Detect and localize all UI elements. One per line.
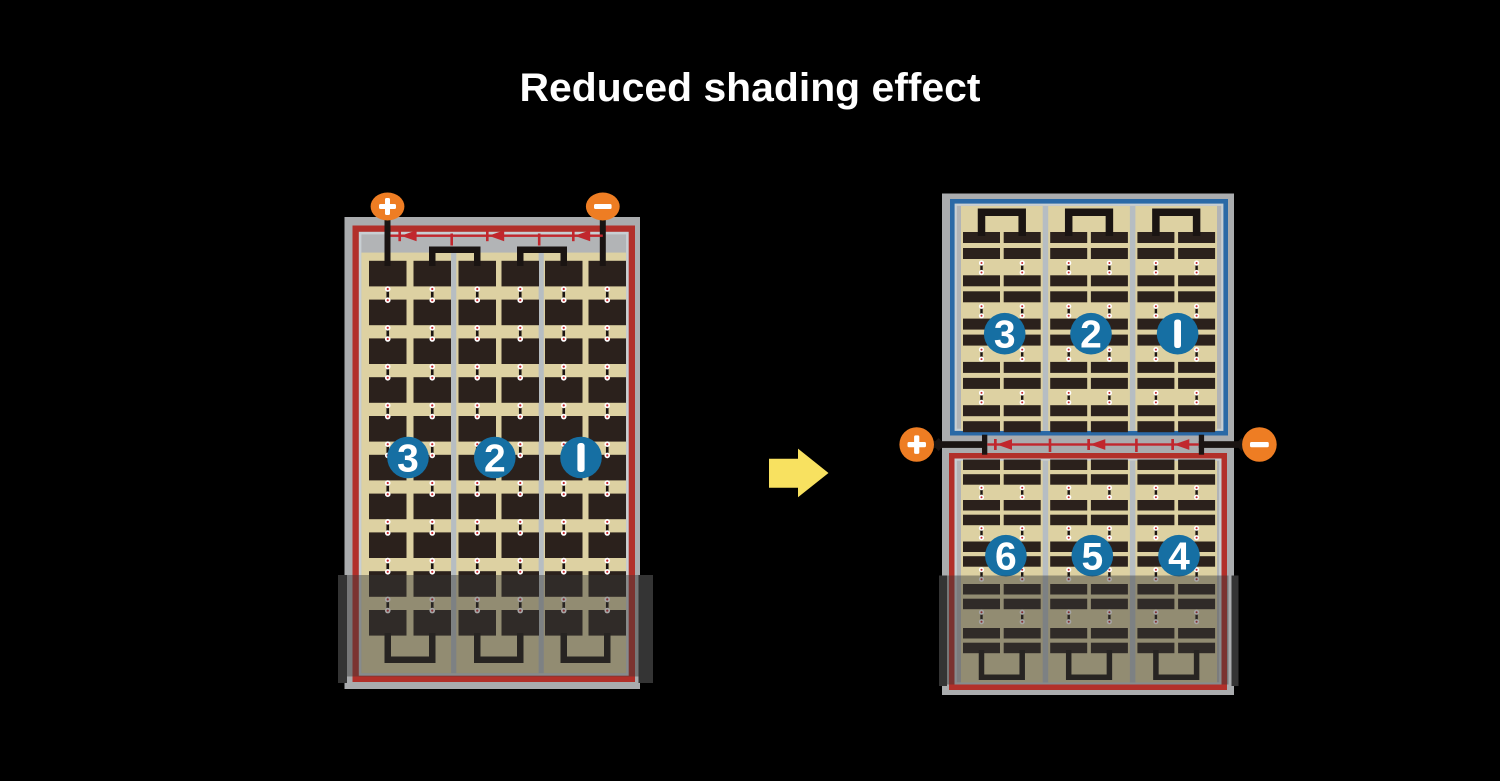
svg-text:4: 4 [1168, 536, 1190, 579]
svg-text:Reduced shading effect: Reduced shading effect [520, 66, 981, 110]
svg-text:2: 2 [1080, 314, 1102, 357]
svg-text:5: 5 [1081, 536, 1103, 579]
svg-text:6: 6 [995, 536, 1017, 579]
svg-text:3: 3 [397, 438, 419, 481]
svg-text:2: 2 [484, 438, 506, 481]
svg-text:3: 3 [994, 314, 1016, 357]
